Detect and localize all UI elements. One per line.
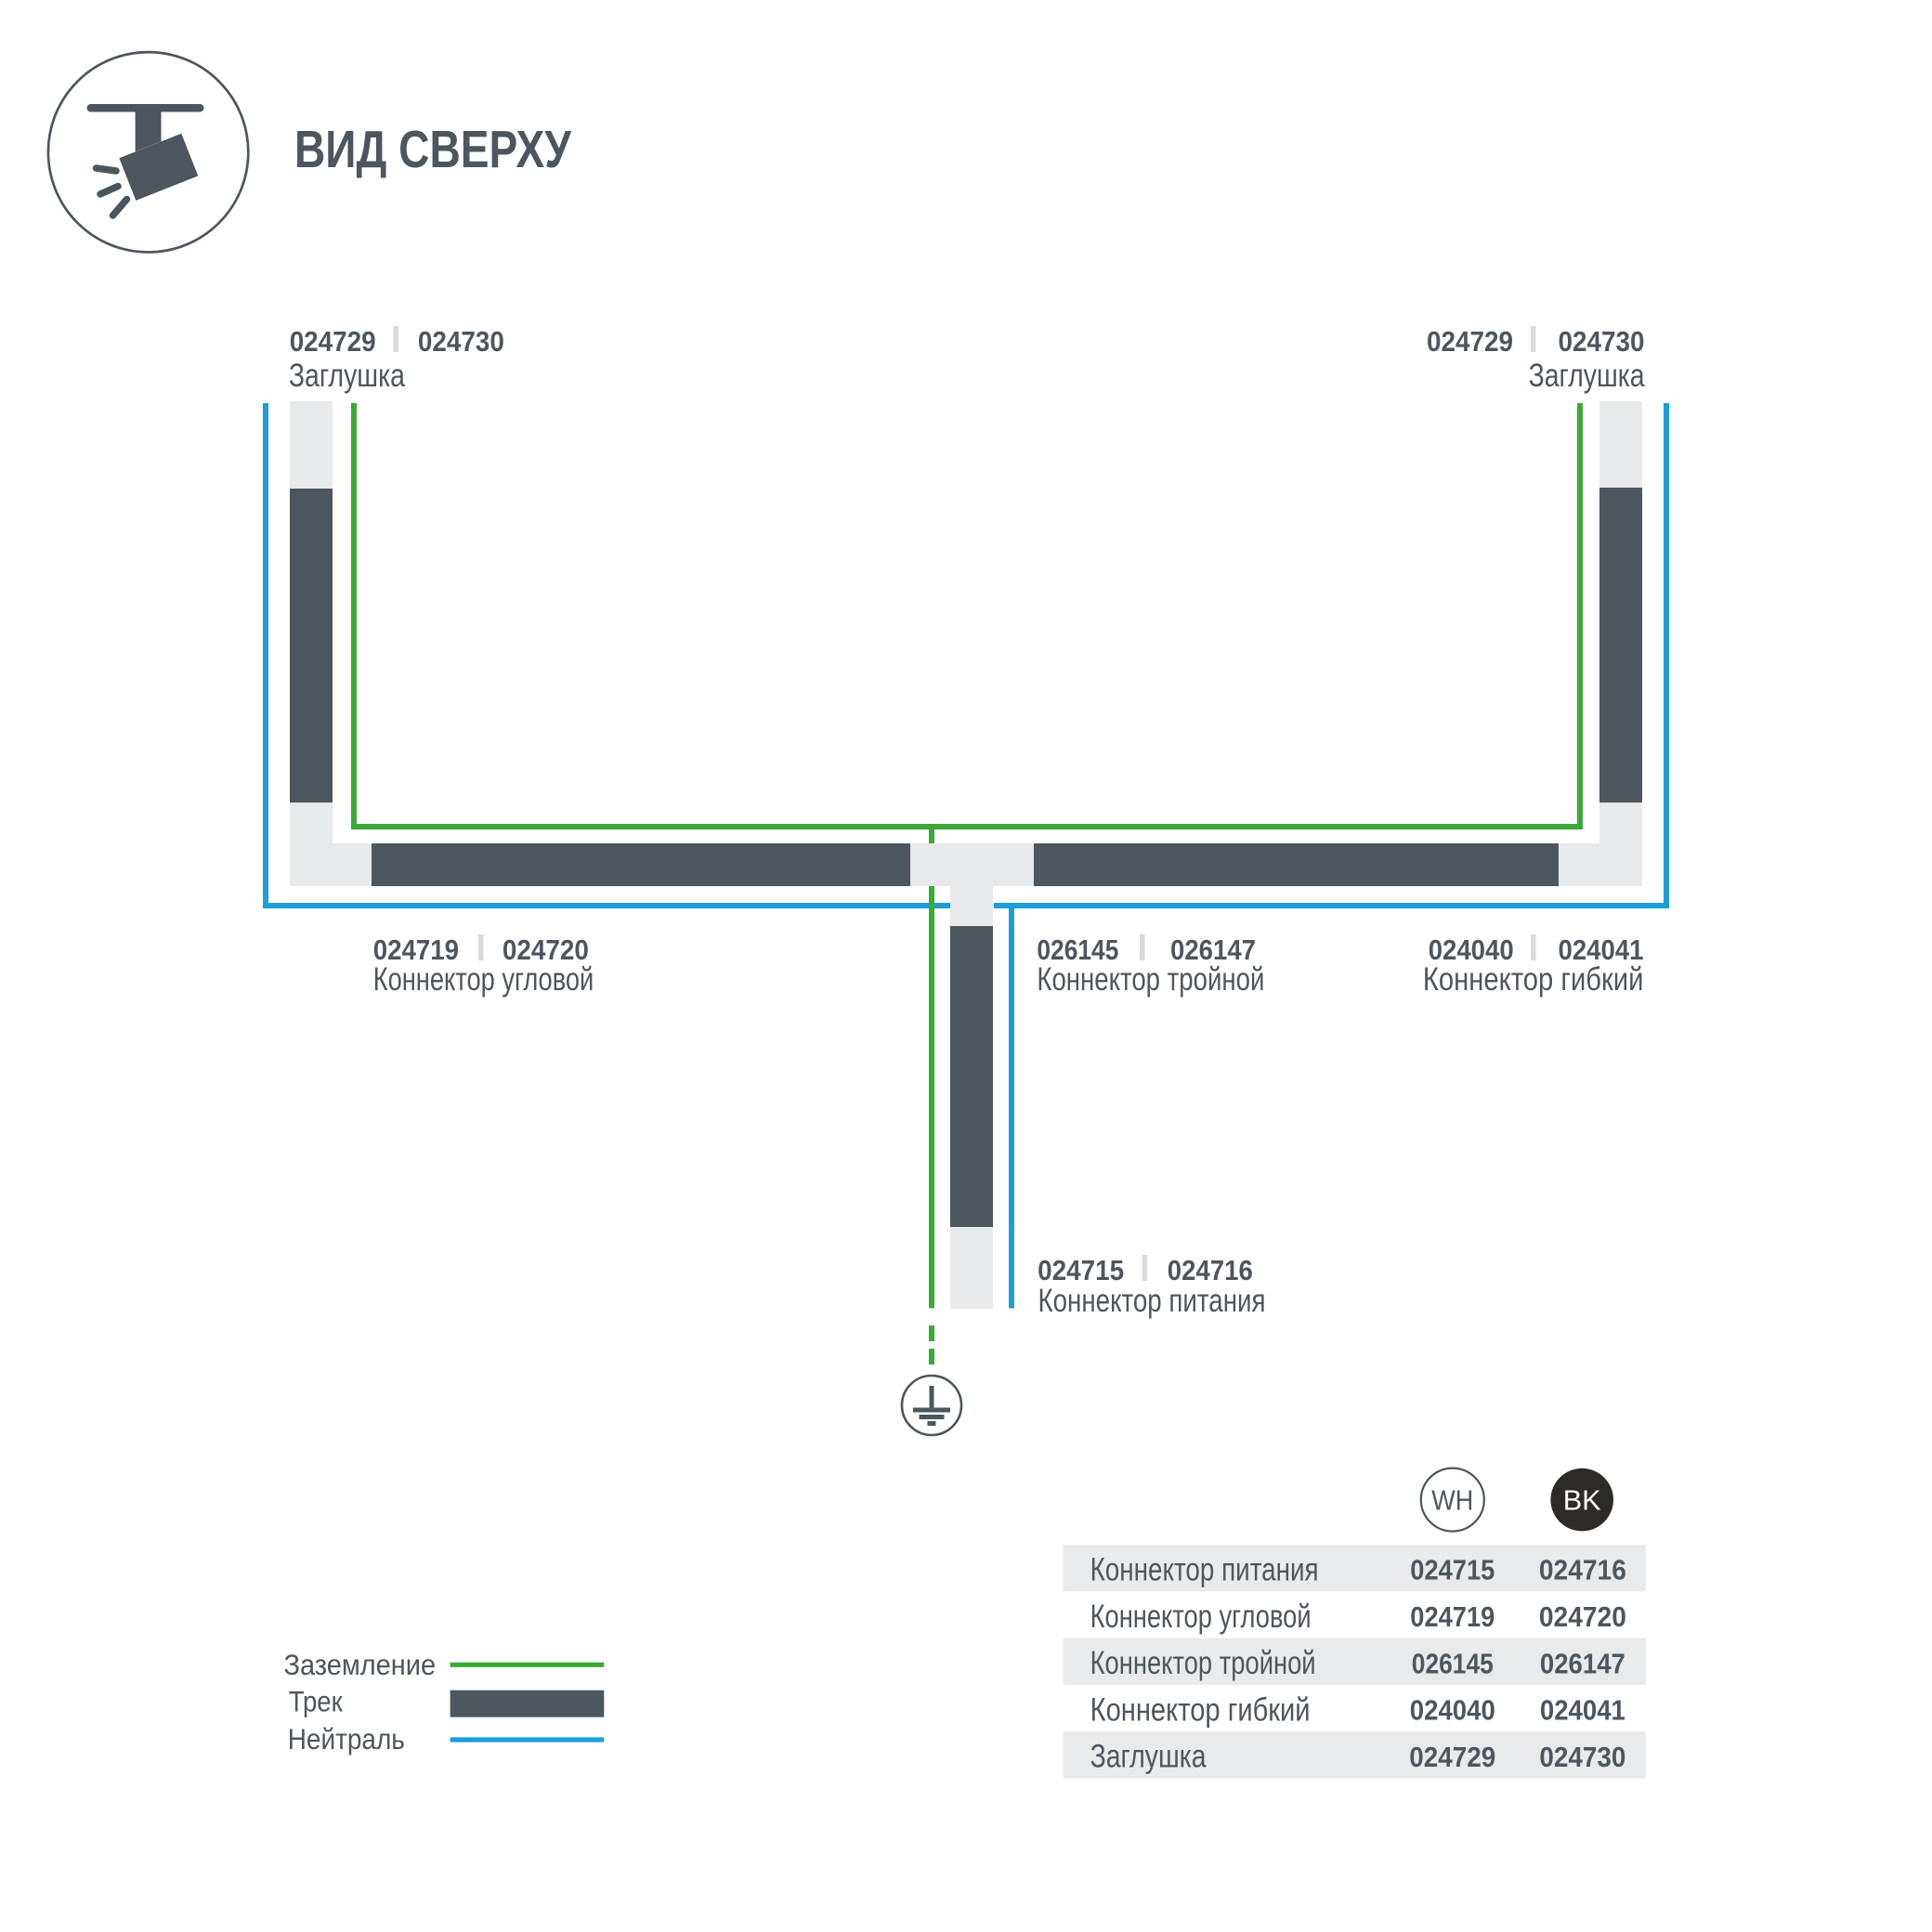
svg-text:024715: 024715 xyxy=(1038,1254,1124,1286)
svg-text:024730: 024730 xyxy=(1559,325,1645,358)
svg-text:Заглушка: Заглушка xyxy=(1090,1739,1207,1775)
svg-text:Коннектор тройной: Коннектор тройной xyxy=(1037,961,1264,998)
svg-text:Нейтраль: Нейтраль xyxy=(288,1722,405,1756)
svg-text:Коннектор тройной: Коннектор тройной xyxy=(1090,1645,1316,1681)
svg-text:024729: 024729 xyxy=(290,325,376,358)
svg-text:Заглушка: Заглушка xyxy=(289,358,405,394)
svg-text:026147: 026147 xyxy=(1540,1647,1625,1679)
svg-text:024729: 024729 xyxy=(1427,325,1513,358)
svg-text:Коннектор гибкий: Коннектор гибкий xyxy=(1090,1691,1311,1728)
svg-text:Трек: Трек xyxy=(289,1685,343,1718)
svg-text:ВИД СВЕРХУ: ВИД СВЕРХУ xyxy=(294,120,572,178)
svg-text:024720: 024720 xyxy=(1539,1600,1626,1633)
svg-text:BK: BK xyxy=(1563,1483,1601,1516)
svg-text:Заземление: Заземление xyxy=(284,1648,437,1681)
svg-text:WH: WH xyxy=(1431,1483,1473,1516)
svg-text:024040: 024040 xyxy=(1410,1694,1495,1727)
svg-text:Заглушка: Заглушка xyxy=(1529,358,1645,394)
svg-text:024729: 024729 xyxy=(1409,1741,1495,1773)
svg-text:Коннектор угловой: Коннектор угловой xyxy=(1090,1599,1312,1635)
svg-text:024719: 024719 xyxy=(1410,1600,1495,1633)
svg-text:Коннектор питания: Коннектор питания xyxy=(1090,1552,1319,1588)
svg-text:Коннектор угловой: Коннектор угловой xyxy=(373,961,594,998)
svg-text:024716: 024716 xyxy=(1168,1254,1253,1286)
svg-text:024716: 024716 xyxy=(1539,1554,1626,1586)
svg-text:Коннектор гибкий: Коннектор гибкий xyxy=(1423,961,1644,998)
svg-text:024730: 024730 xyxy=(418,325,504,358)
svg-text:Коннектор питания: Коннектор питания xyxy=(1038,1283,1266,1319)
svg-text:026145: 026145 xyxy=(1412,1647,1494,1679)
svg-text:024041: 024041 xyxy=(1540,1694,1625,1727)
svg-text:024730: 024730 xyxy=(1539,1741,1625,1773)
svg-text:024715: 024715 xyxy=(1410,1554,1495,1586)
